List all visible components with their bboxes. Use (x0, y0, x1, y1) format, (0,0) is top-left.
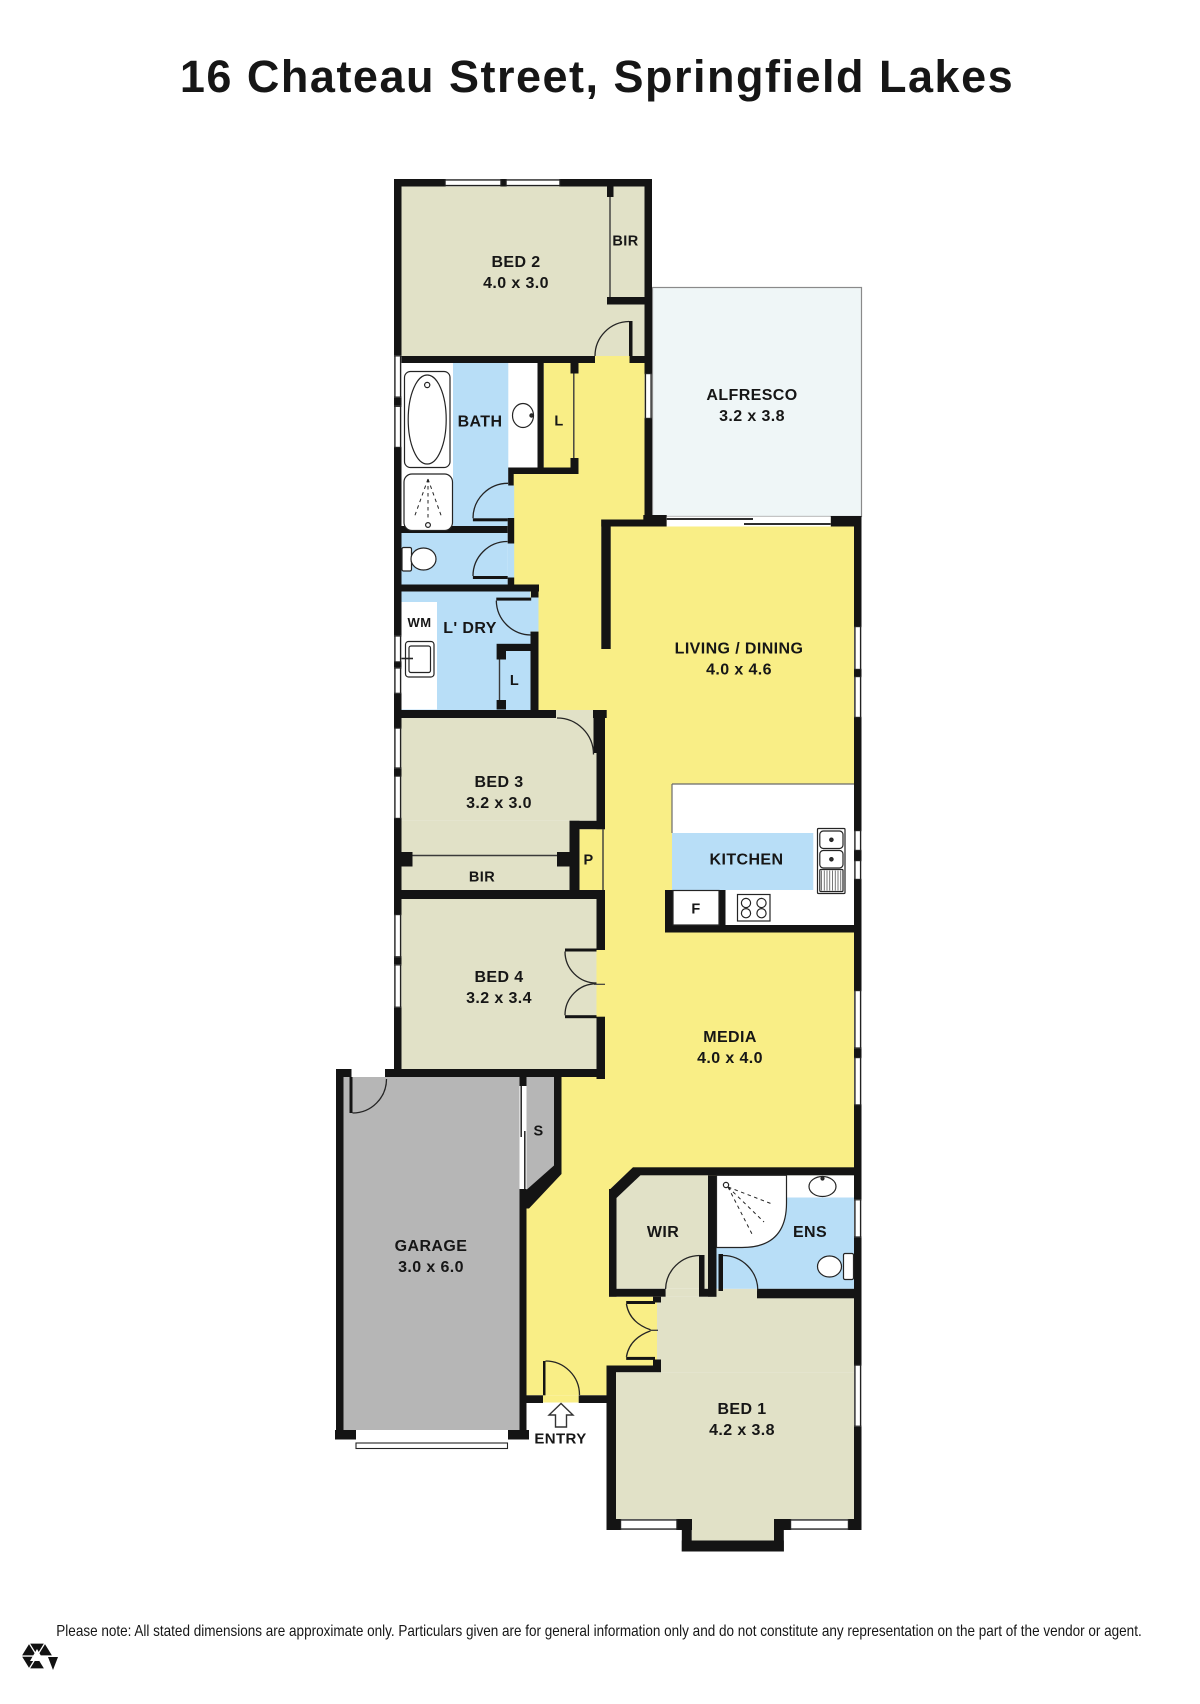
svg-text:GARAGE: GARAGE (395, 1238, 468, 1255)
svg-text:L: L (554, 414, 563, 430)
svg-text:ENTRY: ENTRY (534, 1431, 586, 1448)
svg-text:4.0 x 3.0: 4.0 x 3.0 (483, 275, 549, 292)
svg-text:LIVING / DINING: LIVING / DINING (675, 641, 804, 658)
svg-text:BED 4: BED 4 (474, 969, 523, 986)
svg-text:Please note: All stated dimens: Please note: All stated dimensions are a… (56, 1623, 1141, 1640)
svg-text:BED 3: BED 3 (474, 774, 523, 791)
svg-text:KITCHEN: KITCHEN (710, 852, 784, 869)
svg-text:BED 2: BED 2 (491, 254, 540, 271)
svg-text:BIR: BIR (612, 234, 638, 250)
svg-text:WM: WM (408, 615, 432, 630)
svg-text:L' DRY: L' DRY (443, 620, 497, 637)
svg-text:16 Chateau Street, Springfield: 16 Chateau Street, Springfield Lakes (180, 51, 1014, 102)
svg-text:BATH: BATH (458, 414, 503, 431)
svg-text:3.2 x 3.0: 3.2 x 3.0 (466, 795, 532, 812)
svg-text:3.2 x 3.4: 3.2 x 3.4 (466, 990, 532, 1007)
svg-text:MEDIA: MEDIA (703, 1029, 757, 1046)
svg-text:P: P (583, 853, 593, 869)
svg-text:BED 1: BED 1 (717, 1401, 766, 1418)
svg-text:ENS: ENS (793, 1224, 827, 1241)
svg-text:F: F (691, 902, 700, 918)
svg-text:4.0 x 4.6: 4.0 x 4.6 (706, 662, 772, 679)
svg-text:4.0 x 4.0: 4.0 x 4.0 (697, 1050, 763, 1067)
svg-text:4.2 x 3.8: 4.2 x 3.8 (709, 1422, 775, 1439)
svg-text:3.0 x 6.0: 3.0 x 6.0 (398, 1259, 464, 1276)
svg-text:BIR: BIR (469, 870, 495, 886)
svg-text:3.2 x 3.8: 3.2 x 3.8 (719, 408, 785, 425)
svg-text:WIR: WIR (647, 1224, 679, 1241)
svg-text:L: L (510, 673, 519, 689)
svg-text:S: S (533, 1124, 543, 1140)
svg-text:ALFRESCO: ALFRESCO (706, 387, 797, 404)
